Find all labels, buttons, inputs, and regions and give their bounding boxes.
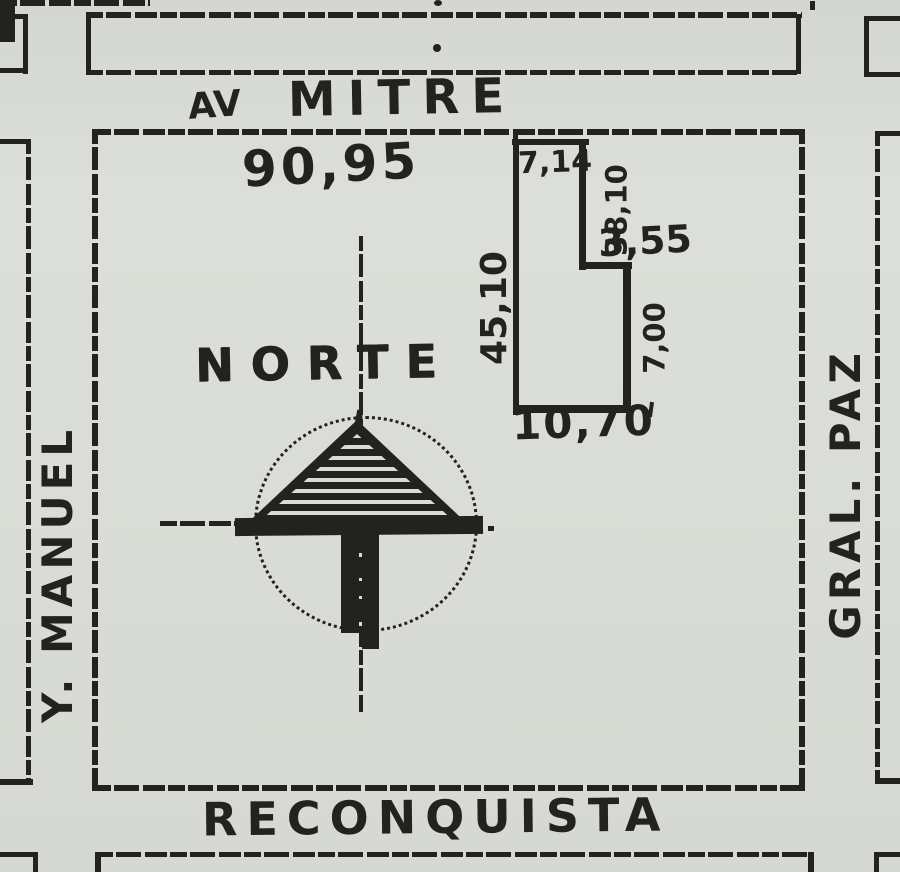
scan-artifact-edge-dash [0,0,150,6]
center-block-right-line [799,129,805,790]
north-block-left-line [86,14,91,75]
west-block-right-line [26,139,31,785]
west-block-bottom-line [0,779,33,785]
ne-block-left-line [864,16,869,76]
street-label-reconquista: RECONQUISTA [202,792,670,843]
east-block-left-line [875,131,880,782]
lot-right-lower-line [623,262,631,413]
sw-block-top-line [0,852,37,857]
nw-block-bottom-line [0,68,28,73]
north-arrow-stem-right [362,530,379,649]
north-block-top-line [86,12,802,18]
south-block-top-line [96,852,814,857]
scan-artifact-blob [0,0,15,42]
sw-block-right-line [33,852,38,872]
lot-dim-side-lower-right: 7,00 [641,302,670,374]
north-arrow-stem-left [341,530,359,633]
street-label-y-manuel: Y. MANUEL [37,425,79,723]
east-block-bottom-line [875,778,900,784]
scan-artifact-tick [810,1,815,10]
scan-artifact-dot [434,0,442,6]
north-arrow-base-bar [235,516,483,536]
scan-artifact-dot [433,44,441,52]
lot-dim-front: 7,14 [517,147,592,180]
street-label-mitre: MITRE [288,72,517,124]
nw-block-right-line [23,14,28,74]
south-block-left-line [95,852,101,872]
street-label-av: AV [187,86,243,126]
ne-block-top-line [864,16,900,21]
north-block-right-line [796,14,801,74]
center-block-left-line [92,129,98,791]
block-frontage-dimension: 90,95 [241,135,422,194]
croquis-map: AV MITRE RECONQUISTA Y. MANUEL GRAL. PAZ… [0,0,900,872]
street-label-gral-paz: GRAL. PAZ [825,348,867,640]
ne-block-bottom-line [864,72,900,77]
east-block-top-line [877,131,900,136]
se-block-left-line [874,852,879,872]
north-label: NORTE [195,338,455,389]
lot-dim-step: 3,55 [597,220,693,263]
lot-dim-side-left: 45,10 [477,251,513,365]
center-block-top-line [94,129,802,135]
lot-dim-rear: 10,70 [511,400,655,447]
south-block-right-line [808,852,814,872]
